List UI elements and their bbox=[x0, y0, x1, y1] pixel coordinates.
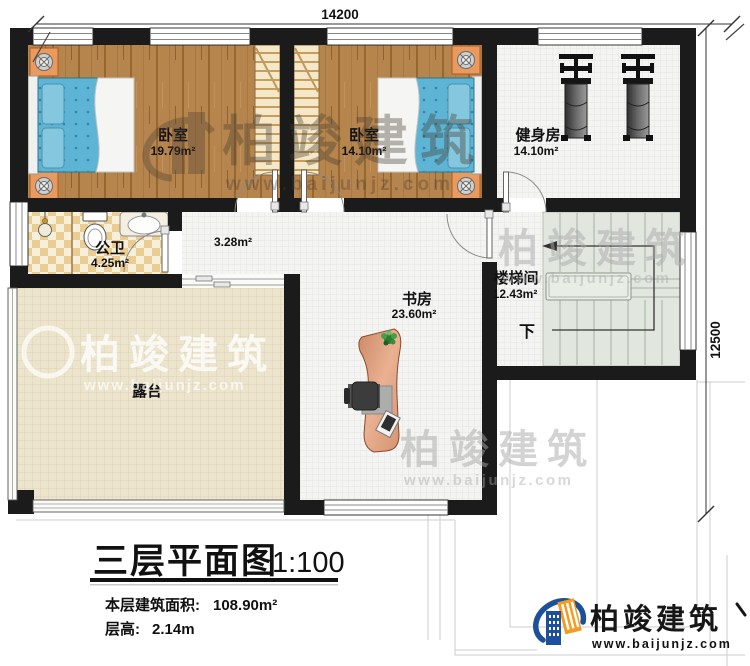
window bbox=[324, 500, 448, 515]
watermark-url-center: www.baijunjz.com bbox=[225, 174, 454, 195]
gym-label: 健身房 bbox=[515, 126, 560, 144]
dimension-depth: 12500 bbox=[708, 321, 723, 359]
window bbox=[10, 202, 28, 266]
lamp-icon bbox=[458, 52, 475, 69]
bed-pillow bbox=[42, 128, 64, 168]
stairwell-area: 12.43m² bbox=[493, 287, 538, 301]
lamp-icon bbox=[36, 54, 53, 71]
title-underline-shadow bbox=[90, 584, 338, 586]
study-area: 23.60m² bbox=[392, 307, 437, 321]
shower-head-icon bbox=[43, 219, 48, 224]
office-chair bbox=[352, 382, 378, 410]
hallway-area: 3.28m² bbox=[214, 235, 252, 249]
dimension-width: 14200 bbox=[321, 7, 359, 22]
window bbox=[150, 28, 250, 45]
title-underline bbox=[90, 578, 338, 582]
bed-headboard bbox=[28, 76, 38, 174]
stair-down-label: 下 bbox=[519, 324, 535, 341]
faucet-icon bbox=[142, 213, 147, 218]
watermark-url-terrace: www.baijunjz.com bbox=[83, 377, 245, 394]
floor-area-value: 108.90m² bbox=[213, 597, 277, 614]
plan-title: 三层平面图 bbox=[93, 542, 278, 581]
window bbox=[33, 28, 93, 45]
gym-area: 14.10m² bbox=[514, 144, 559, 158]
watermark-brand-study: 柏竣建筑 bbox=[400, 428, 596, 472]
toilet-tank bbox=[83, 212, 107, 221]
chair-back bbox=[344, 388, 350, 404]
window bbox=[327, 28, 453, 45]
study-label: 书房 bbox=[402, 290, 432, 308]
floor-height-value: 2.14m bbox=[152, 621, 195, 638]
bathroom-area: 4.25m² bbox=[91, 256, 129, 270]
brand-logo-name: 柏竣建筑 bbox=[590, 602, 722, 636]
watermark-url-study: www.baijunjz.com bbox=[403, 472, 573, 489]
plan-scale: 1:100 bbox=[272, 547, 345, 579]
lamp-icon bbox=[36, 178, 53, 195]
floor-plan-page: 卧室 19.79m² 卧室 14.10m² 健身房 14.10m² 公卫 4.2… bbox=[0, 0, 750, 666]
bathroom-label: 公卫 bbox=[95, 240, 125, 257]
watermark-url-stairwell: www.baijunjz.com bbox=[501, 270, 671, 287]
watermark-brand-stairwell: 柏竣建筑 bbox=[498, 227, 694, 271]
lamp-icon bbox=[458, 178, 475, 195]
floor-drain-icon bbox=[39, 224, 52, 237]
bed-pillow bbox=[42, 84, 64, 124]
bed-blanket bbox=[95, 78, 134, 172]
watermark-brand-center: 柏竣建筑 bbox=[222, 112, 486, 172]
brand-logo-url: www.baijunjz.com bbox=[591, 637, 732, 651]
floor-plan-drawing: 卧室 19.79m² 卧室 14.10m² 健身房 14.10m² 公卫 4.2… bbox=[0, 0, 750, 666]
watermark-brand-terrace: 柏竣建筑 bbox=[80, 333, 276, 377]
window bbox=[538, 28, 642, 45]
floor-area-label: 本层建筑面积: bbox=[105, 596, 200, 614]
sink-icon bbox=[128, 216, 160, 234]
floor-height-label: 层高: bbox=[105, 620, 140, 638]
